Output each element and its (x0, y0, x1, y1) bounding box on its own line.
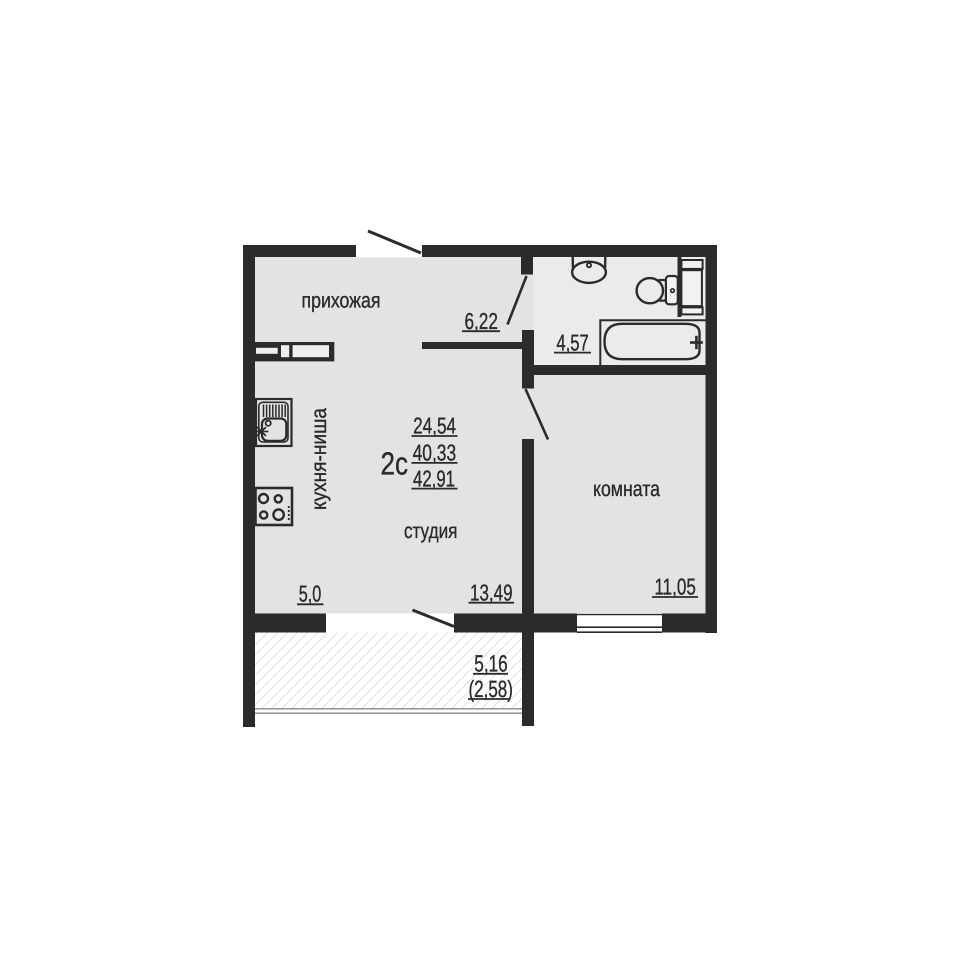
svg-text:6,22: 6,22 (464, 308, 498, 334)
svg-text:42,91: 42,91 (413, 465, 455, 491)
svg-text:5,16: 5,16 (474, 651, 508, 677)
svg-text:5,0: 5,0 (299, 580, 322, 606)
svg-text:прихожая: прихожая (302, 288, 381, 312)
svg-text:24,54: 24,54 (413, 413, 456, 439)
svg-text:кухня-ниша: кухня-ниша (307, 408, 331, 510)
svg-text:комната: комната (593, 477, 660, 501)
svg-text:40,33: 40,33 (413, 440, 457, 466)
svg-text:13,49: 13,49 (470, 579, 513, 605)
svg-text:студия: студия (404, 519, 458, 543)
svg-text:11,05: 11,05 (654, 574, 696, 600)
svg-text:4,57: 4,57 (556, 329, 589, 355)
svg-text:2с: 2с (381, 446, 409, 482)
